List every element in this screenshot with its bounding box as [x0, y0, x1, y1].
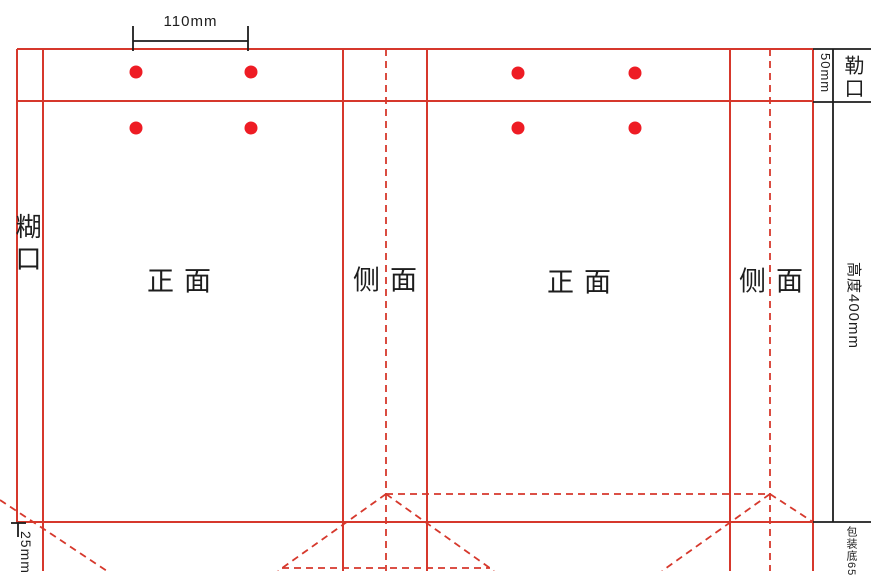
handle-hole — [629, 122, 642, 135]
fold-lines — [0, 49, 813, 571]
side-panel-left-label: 侧面 — [353, 268, 427, 295]
front-panel-left-label: 正面 — [147, 269, 221, 296]
side-panel-right-label: 侧面 — [739, 269, 813, 296]
top-fold-flap-label: 勒口 — [842, 55, 862, 101]
glue-flap-label: 糊口 — [14, 213, 40, 277]
handle-hole — [130, 122, 143, 135]
handle-hole — [512, 67, 525, 80]
bottom-fold-dimension: 25mm — [17, 531, 34, 574]
handle-hole — [245, 122, 258, 135]
top-fold-dimension: 50mm — [817, 53, 833, 93]
bag-height-dimension: 高度400mm — [844, 262, 862, 349]
bottom-panel-label: 包装底65 — [845, 526, 856, 576]
front-panel-right-label: 正面 — [547, 270, 621, 297]
handle-hole — [245, 66, 258, 79]
handle-hole — [130, 66, 143, 79]
hole-spacing-dimension: 110mm — [133, 14, 248, 29]
handle-hole — [629, 67, 642, 80]
handle-hole — [512, 122, 525, 135]
dieline-canvas: 110mm 50mm 高度400mm 25mm 糊口 勒口 正面 侧面 正面 侧… — [0, 0, 871, 571]
